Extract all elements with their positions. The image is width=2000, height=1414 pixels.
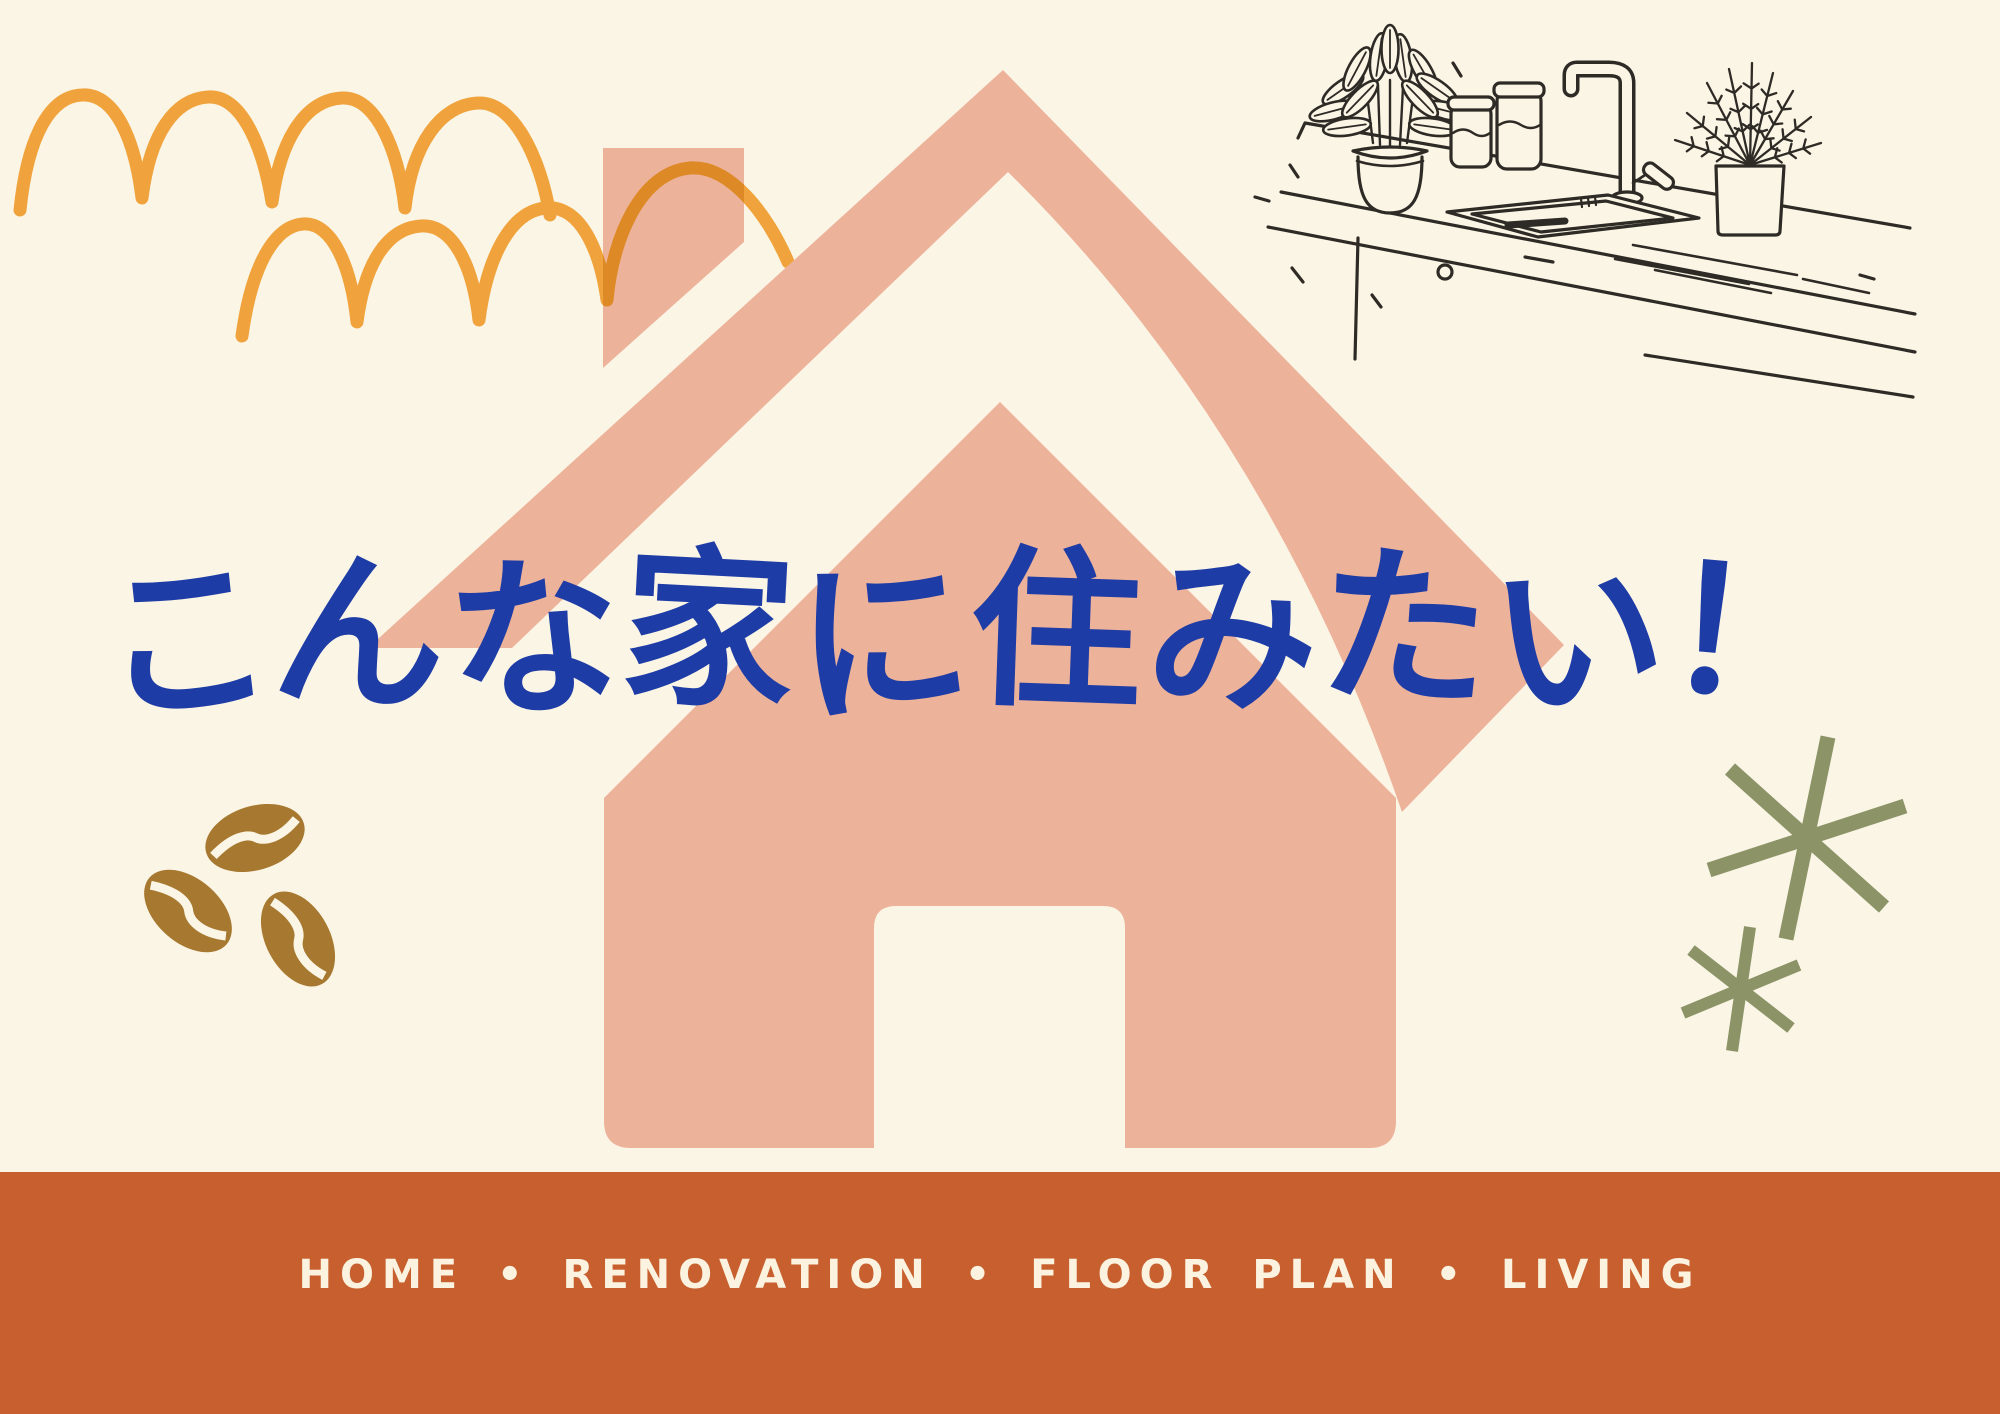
glass-jars: [1448, 83, 1544, 169]
headline-char: 家: [618, 541, 801, 722]
faucet: [1571, 69, 1676, 204]
sparkle-large: [1709, 737, 1905, 939]
poster-canvas: こんな家に住みたい！ HOME • RENOVATION • FLOOR PLA…: [0, 0, 2000, 1414]
cabinet-knob: [1438, 265, 1452, 279]
headline-char: 住: [967, 543, 1147, 721]
coffee-bean: [197, 792, 313, 883]
cabinet-bottom-line: [1645, 355, 1913, 397]
headline-char: ん: [268, 542, 454, 726]
herb-branch: [1743, 63, 1759, 165]
arc-row-1: [20, 95, 550, 215]
headline-char: た: [1312, 538, 1498, 722]
plant-leaf: [1382, 25, 1399, 73]
headline-char: み: [1138, 545, 1324, 729]
herb-branch: [1726, 69, 1750, 165]
footer-caption: HOME • RENOVATION • FLOOR PLAN • LIVING: [298, 1252, 1701, 1298]
headline-char: に: [788, 547, 979, 736]
coffee-beans-icon: [129, 792, 351, 999]
footer-bar: HOME • RENOVATION • FLOOR PLAN • LIVING: [0, 1172, 2000, 1414]
counter-grain-lines: [1615, 245, 1869, 293]
headline-char: い: [1485, 547, 1673, 734]
sparkle-small: [1683, 927, 1799, 1051]
sparkle-asterisk-icon: [1683, 737, 1905, 1051]
herb-branch: [1750, 139, 1821, 165]
headline-char: ！: [1659, 543, 1847, 730]
kitchen-sink-illustration: [1255, 25, 1915, 397]
door: [874, 906, 1125, 1172]
headline-char: な: [443, 548, 629, 732]
cabinet-divider: [1355, 238, 1358, 359]
headline-text: こんな家に住みたい！: [0, 548, 1970, 720]
potted-plant: [1308, 25, 1473, 213]
coffee-bean: [246, 879, 350, 999]
headline-char: こ: [92, 547, 283, 736]
